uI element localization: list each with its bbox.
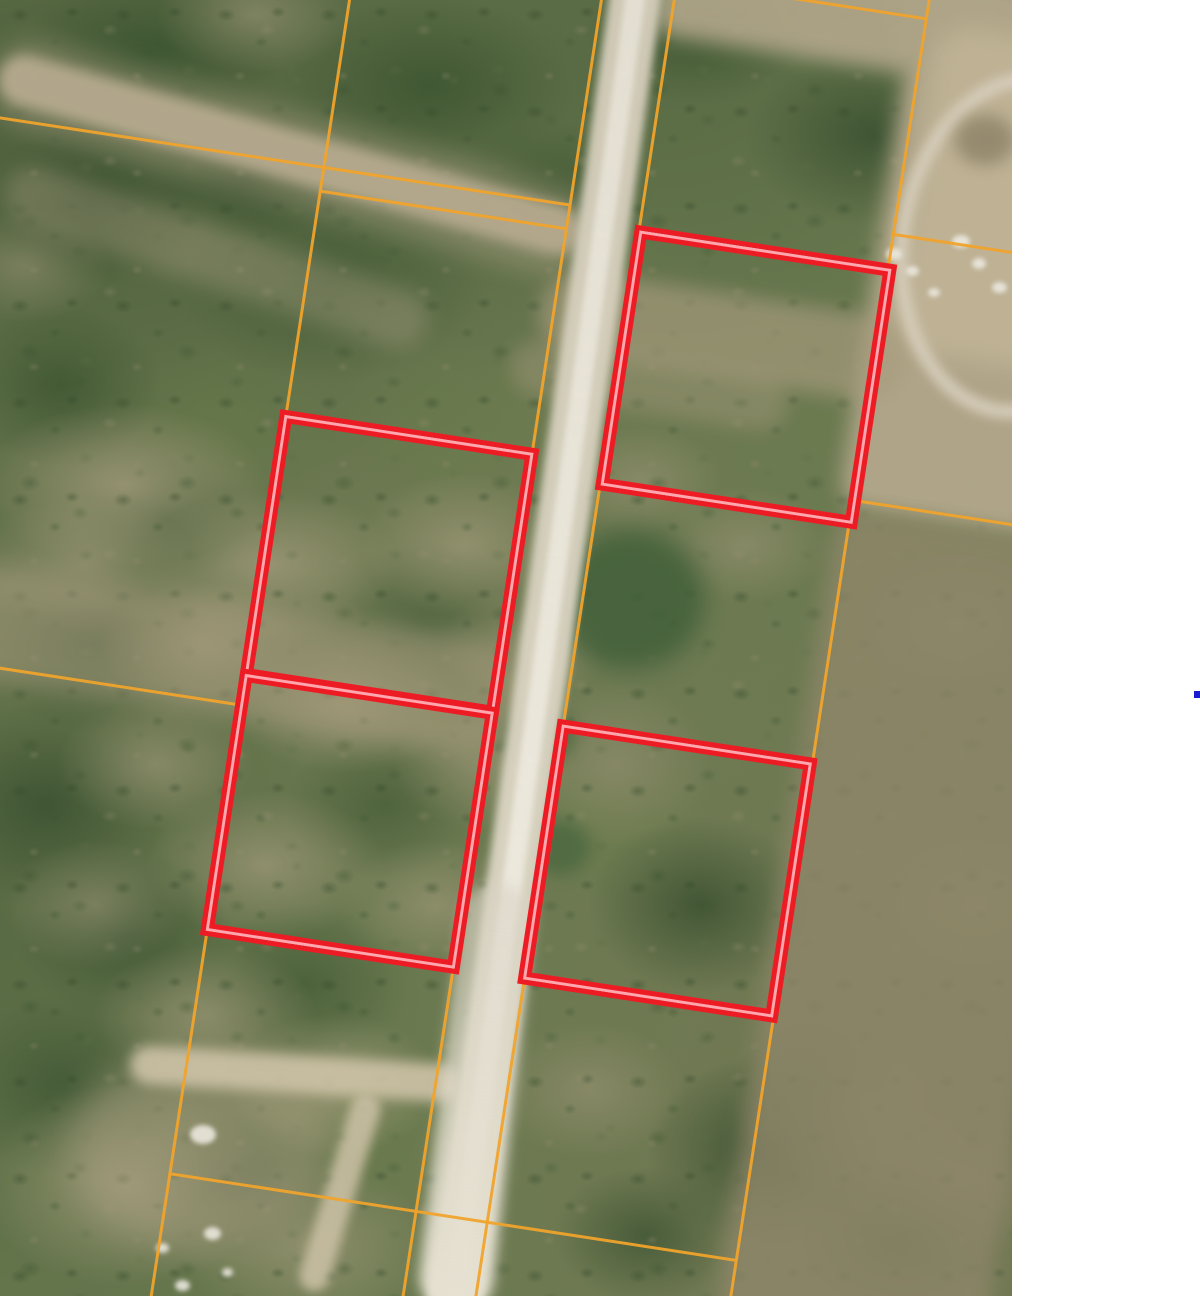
parcel-boundary-line-horizontal-6: [851, 499, 1012, 535]
bare-spot: [175, 1280, 190, 1291]
satellite-map[interactable]: [0, 0, 1012, 1296]
bare-spot: [972, 258, 986, 269]
parcel-boundary-line-vertical-4: [680, 0, 940, 1296]
highlighted-parcel-2[interactable]: [200, 668, 500, 975]
bare-spot: [906, 266, 919, 276]
bare-spot: [992, 282, 1007, 293]
parcel-boundary-line-horizontal-3: [0, 641, 242, 706]
bare-spot: [156, 1243, 169, 1253]
bare-spot: [886, 248, 902, 260]
bottom-left-soil-patch: [70, 1050, 330, 1250]
screenshot-root: [0, 0, 1200, 1296]
bare-spot: [204, 1227, 221, 1240]
parcel-boundary-line-horizontal-4: [700, 0, 927, 20]
bare-spot: [928, 288, 940, 297]
clipped-blue-element: [1194, 691, 1200, 698]
dirt-track-upper-left-faint: [0, 158, 436, 357]
curved-drive-dark-patch: [955, 115, 1012, 165]
bare-strip-top: [652, 0, 936, 75]
bottom-left-track-descending: [296, 1090, 385, 1295]
parcel-boundary-line-horizontal-1: [0, 103, 571, 206]
bare-spot: [222, 1268, 233, 1277]
bare-spot: [190, 1125, 216, 1144]
highlighted-parcel-1[interactable]: [239, 409, 539, 719]
bare-spot: [952, 235, 970, 248]
bottom-left-track-horizontal: [129, 1045, 461, 1103]
parcel-boundary-line-horizontal-7: [168, 1172, 737, 1261]
dirt-track-upper-left-halo: [0, 30, 601, 284]
parcel-boundary-line-horizontal-2: [319, 189, 567, 229]
bare-zone-upper-right-light: [888, 22, 1012, 378]
highlighted-parcel-4[interactable]: [517, 719, 818, 1024]
dark-brush-blob: [555, 530, 705, 670]
dirt-track-upper-left: [0, 49, 587, 260]
curved-drive-loop: [872, 54, 1012, 436]
right-panel: [1012, 0, 1200, 1296]
highlighted-parcel-3[interactable]: [595, 225, 897, 530]
